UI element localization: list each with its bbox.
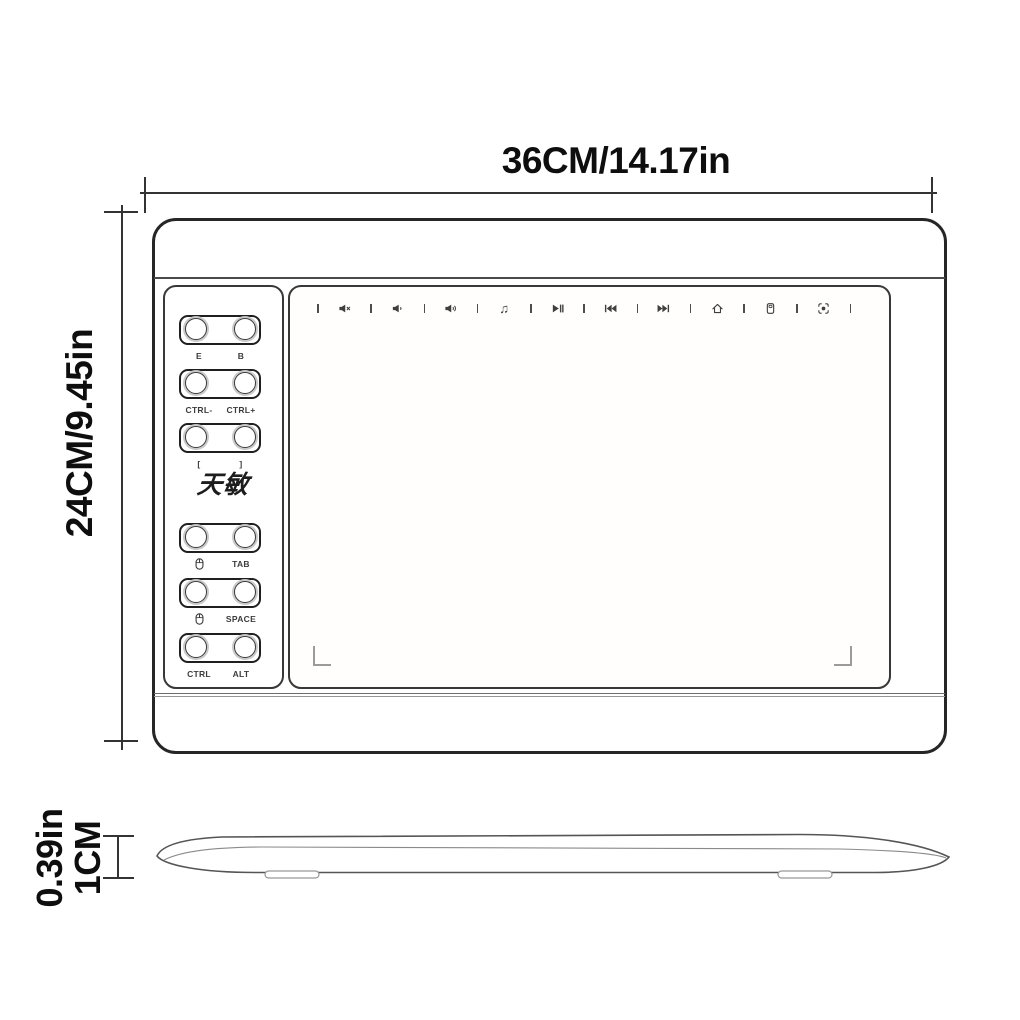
next-track-icon	[656, 301, 671, 316]
height-dimension-tick-top	[104, 211, 138, 213]
key-labels: TAB	[179, 557, 261, 570]
drawing-area: ♫	[288, 285, 891, 689]
express-key-button	[179, 369, 261, 399]
express-key-pair: CTRL- CTRL+	[179, 369, 261, 416]
key-cap-right	[234, 318, 256, 340]
mouse-icon	[192, 611, 207, 626]
corner-mark-bottom-left	[313, 646, 331, 666]
key-labels: CTRL ALT	[179, 667, 261, 680]
volume-down-icon	[390, 301, 405, 316]
rubber-foot-left	[265, 871, 319, 878]
thickness-dimension-line	[117, 836, 119, 879]
key-label-left: CTRL	[183, 669, 215, 679]
separator-bar	[690, 304, 692, 313]
thickness-dimension-tick-top	[103, 835, 134, 837]
top-bezel-divider	[154, 277, 945, 279]
corner-mark-bottom-right	[834, 646, 852, 666]
key-labels: CTRL- CTRL+	[179, 403, 261, 416]
height-dimension-tick-bottom	[104, 740, 138, 742]
express-key-button	[179, 633, 261, 663]
key-cap-right	[234, 526, 256, 548]
key-labels: E B	[179, 349, 261, 362]
product-dimension-diagram: 36CM/14.17in 24CM/9.45in 天敏 E B	[0, 0, 1020, 1020]
record-icon	[816, 301, 831, 316]
thickness-dimension-label-inches: 0.39in	[29, 808, 71, 907]
thickness-dimension-label-cm: 1CM	[67, 821, 109, 896]
width-dimension-label: 36CM/14.17in	[502, 140, 730, 182]
express-key-pair: E B	[179, 315, 261, 362]
express-key-panel: 天敏 E B CTRL- CTRL+	[163, 285, 284, 689]
separator-bar	[850, 304, 852, 313]
profile-outline	[157, 835, 949, 873]
key-cap-left	[185, 526, 207, 548]
key-label-left: [	[183, 459, 215, 469]
rubber-foot-right	[778, 871, 832, 878]
width-dimension-tick-right	[931, 177, 933, 213]
play-pause-icon	[550, 301, 565, 316]
key-label-right: ]	[225, 459, 257, 469]
key-label-left: E	[183, 351, 215, 361]
tablet-side-profile	[140, 822, 965, 884]
separator-bar	[530, 304, 532, 313]
tablet-front-view: 天敏 E B CTRL- CTRL+	[152, 218, 947, 754]
separator-bar	[317, 304, 319, 313]
previous-track-icon	[603, 301, 618, 316]
key-label-right: ALT	[225, 669, 257, 679]
thickness-dimension-tick-bottom	[103, 877, 134, 879]
express-key-pair: TAB	[179, 523, 261, 570]
separator-bar	[424, 304, 426, 313]
express-key-button	[179, 578, 261, 608]
calculator-icon	[763, 301, 778, 316]
express-key-button	[179, 315, 261, 345]
mouse-icon	[192, 556, 207, 571]
separator-bar	[743, 304, 745, 313]
volume-up-icon	[443, 301, 458, 316]
height-dimension-label: 24CM/9.45in	[59, 329, 101, 537]
key-label-right: SPACE	[225, 614, 257, 624]
separator-bar	[796, 304, 798, 313]
key-labels: [ ]	[179, 457, 261, 470]
home-icon	[710, 301, 725, 316]
separator-bar	[583, 304, 585, 313]
express-key-button	[179, 523, 261, 553]
key-cap-left	[185, 426, 207, 448]
key-labels: SPACE	[179, 612, 261, 625]
express-key-pair: SPACE	[179, 578, 261, 625]
key-cap-left	[185, 581, 207, 603]
separator-bar	[637, 304, 639, 313]
height-dimension-line	[121, 205, 123, 750]
express-key-pair: [ ]	[179, 423, 261, 470]
tablet-face: 天敏 E B CTRL- CTRL+	[155, 221, 944, 751]
key-label-right: TAB	[225, 559, 257, 569]
key-cap-right	[234, 581, 256, 603]
mute-icon	[337, 301, 352, 316]
width-dimension-tick-left	[144, 177, 146, 213]
key-cap-right	[234, 636, 256, 658]
key-cap-right	[234, 426, 256, 448]
key-cap-left	[185, 372, 207, 394]
key-label-right: B	[225, 351, 257, 361]
key-label-right: CTRL+	[225, 405, 257, 415]
key-label-left: CTRL-	[183, 405, 215, 415]
express-key-pair: CTRL ALT	[179, 633, 261, 680]
brand-logo: 天敏	[163, 465, 284, 501]
bottom-bezel-divider	[154, 693, 945, 697]
key-label-left	[183, 556, 215, 571]
key-label-left	[183, 611, 215, 626]
express-key-button	[179, 423, 261, 453]
media-bar: ♫	[317, 300, 851, 316]
key-cap-left	[185, 318, 207, 340]
music-icon: ♫	[497, 301, 512, 316]
width-dimension-line	[140, 192, 937, 194]
key-cap-right	[234, 372, 256, 394]
separator-bar	[477, 304, 479, 313]
separator-bar	[370, 304, 372, 313]
key-cap-left	[185, 636, 207, 658]
